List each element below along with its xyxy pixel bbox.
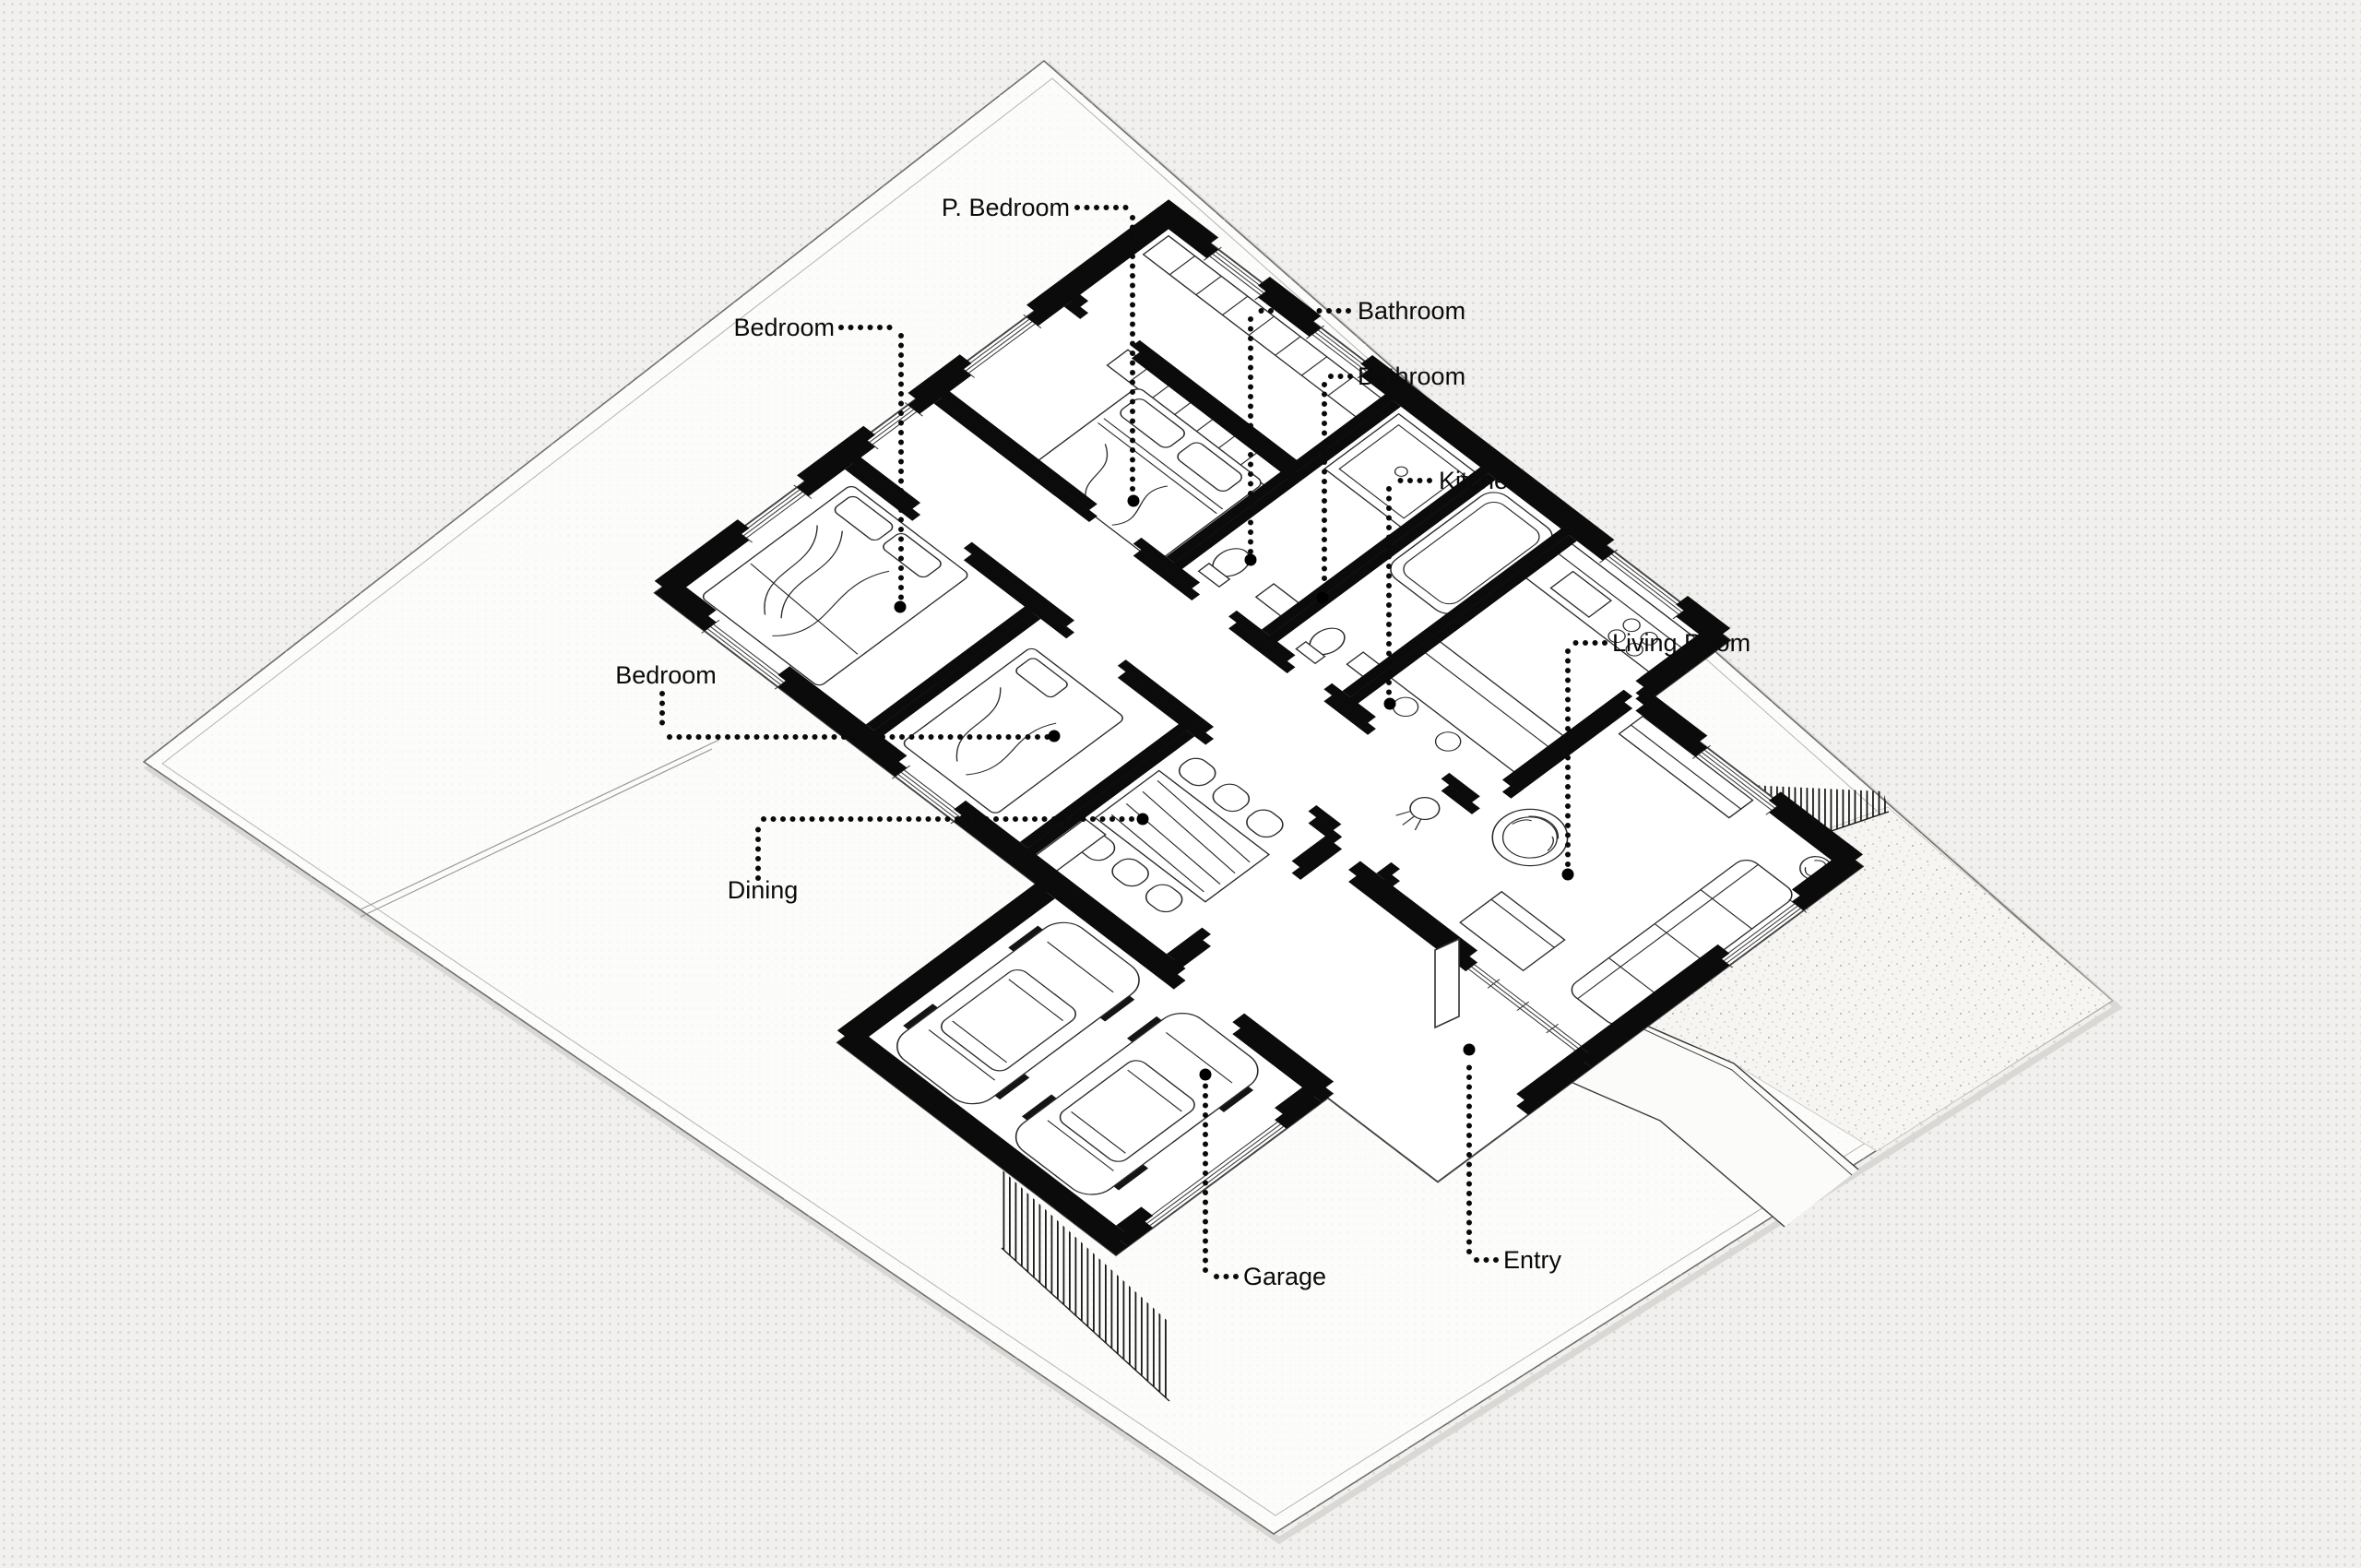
label-kitchen: Kitchen (1439, 467, 1522, 494)
label-p-bedroom: P. Bedroom (942, 194, 1070, 221)
axonometric-floor-plan-screenshot: P. Bedroom Bathroom Bathroom Kitchen Liv… (0, 0, 2361, 1568)
leader-dot-bedroom-1 (895, 601, 907, 613)
label-bathroom-2: Bathroom (1358, 362, 1465, 390)
label-garage: Garage (1243, 1263, 1326, 1290)
label-entry: Entry (1503, 1246, 1562, 1274)
leader-dot-bedroom-2 (1049, 731, 1061, 742)
leader-dot-kitchen (1384, 698, 1396, 710)
label-bedroom-2: Bedroom (615, 661, 717, 689)
entry-door-panel (1435, 939, 1459, 1028)
leader-dot-bathroom-2 (1317, 592, 1329, 604)
leader-dot-entry (1464, 1044, 1476, 1056)
leader-dot-garage (1200, 1069, 1212, 1081)
leader-dot-living-room (1562, 869, 1574, 881)
label-dining: Dining (728, 876, 799, 904)
label-bedroom-1: Bedroom (733, 314, 835, 341)
leader-dot-dining (1137, 814, 1149, 826)
leader-dot-p-bedroom (1128, 495, 1140, 507)
label-bathroom-1: Bathroom (1358, 297, 1465, 325)
site-plan-drawing: P. Bedroom Bathroom Bathroom Kitchen Liv… (0, 0, 2361, 1568)
label-living-room: Living Room (1612, 629, 1750, 657)
leader-dot-bathroom-1 (1245, 554, 1257, 566)
